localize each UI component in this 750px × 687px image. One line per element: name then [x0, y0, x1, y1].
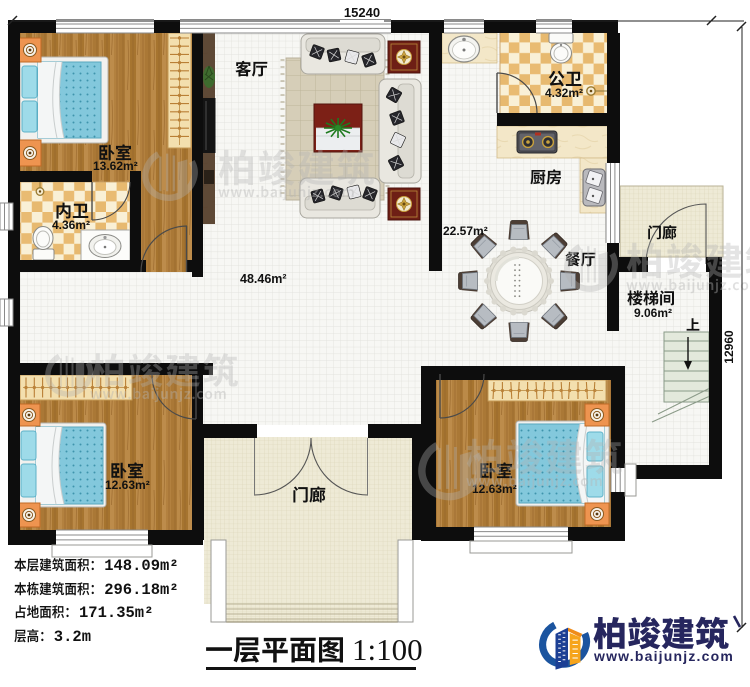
svg-text:1:100: 1:100 — [352, 632, 423, 667]
svg-text:www.baijunjz.com: www.baijunjz.com — [593, 648, 734, 664]
svg-text:296.18m²: 296.18m² — [104, 581, 178, 599]
svg-text:148.09m²: 148.09m² — [104, 557, 178, 575]
svg-text:12960: 12960 — [722, 330, 736, 364]
svg-text:12.63m²: 12.63m² — [105, 478, 150, 492]
svg-text:4.36m²: 4.36m² — [52, 218, 90, 232]
svg-text:22.57m²: 22.57m² — [443, 224, 488, 238]
svg-text:9.06m²: 9.06m² — [634, 306, 672, 320]
svg-text:171.35m²: 171.35m² — [79, 604, 153, 622]
svg-text:3.2m: 3.2m — [54, 628, 91, 646]
svg-text:48.46m²: 48.46m² — [240, 272, 287, 286]
svg-text:4.32m²: 4.32m² — [545, 86, 583, 100]
svg-text:15240: 15240 — [344, 5, 380, 20]
svg-text:13.62m²: 13.62m² — [93, 159, 138, 173]
